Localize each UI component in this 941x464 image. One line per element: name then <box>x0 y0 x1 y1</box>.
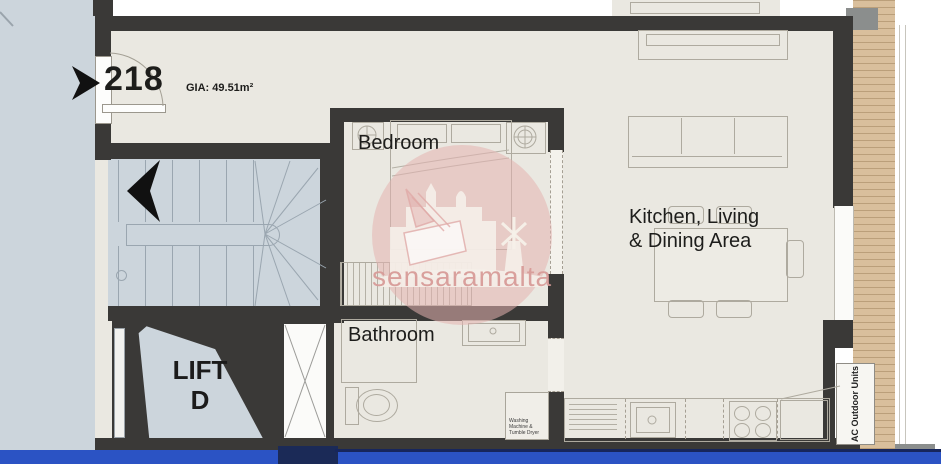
gia-label: GIA: 49.51m² <box>186 82 253 94</box>
toilet-seat <box>363 394 390 416</box>
bathroom-door <box>548 338 564 392</box>
sideboard-inner <box>646 34 780 46</box>
lift-shaft <box>284 324 326 438</box>
counter-divider <box>723 399 724 439</box>
counter-divider <box>685 399 686 439</box>
hob-burner <box>755 406 771 421</box>
wall <box>108 306 564 321</box>
unit-number: 218 <box>104 60 164 99</box>
ac-outdoor-units-label: AC Outdoor Units <box>850 366 861 442</box>
sofa-back-line <box>632 156 782 157</box>
wall <box>95 16 111 58</box>
sofa-seat-divider <box>681 118 682 154</box>
fridge <box>780 400 828 440</box>
kitchen-label-line2: & Dining Area <box>629 230 751 253</box>
kitchen-label-line1: Kitchen, Living <box>629 206 759 229</box>
hob-burner <box>734 406 750 421</box>
lift-door <box>114 328 125 438</box>
stair-handrail <box>126 224 280 246</box>
hob-burner <box>755 423 771 438</box>
nightstand <box>506 122 546 154</box>
wall <box>95 143 344 159</box>
street-band <box>0 450 941 464</box>
counter-divider <box>777 399 778 439</box>
hob-burner <box>734 423 750 438</box>
lift-label-line1: LIFT <box>150 355 250 385</box>
kitchen-sink-basin <box>636 407 670 433</box>
bathroom-label: Bathroom <box>348 324 435 347</box>
entry-door-leaf <box>102 104 166 113</box>
street-band-shadow <box>278 446 338 464</box>
street-band-edge <box>335 449 941 452</box>
stair-newel-circle <box>116 270 127 281</box>
washing-machine-label: Washing Machine & Tumble Dryer <box>506 418 548 439</box>
railing-line <box>899 25 900 448</box>
lift-label: LIFT D <box>150 355 250 415</box>
ac-outdoor-units: AC Outdoor Units <box>836 363 875 445</box>
wall <box>95 16 835 31</box>
dining-chair <box>716 300 752 318</box>
wardrobe <box>340 262 472 306</box>
counter-divider <box>625 399 626 439</box>
bedroom-label: Bedroom <box>358 132 439 155</box>
lift-label-line2: D <box>150 385 250 415</box>
stair-treads-upper <box>118 160 256 222</box>
vanity-basin <box>468 323 520 342</box>
pillow <box>451 124 501 143</box>
wall <box>833 16 853 208</box>
dining-chair <box>786 240 804 278</box>
sofa <box>628 116 788 168</box>
sink-drainer <box>569 404 617 434</box>
railing-line <box>905 25 906 448</box>
wall <box>93 0 113 16</box>
upper-room-furniture <box>630 2 760 14</box>
sofa-seat-divider <box>734 118 735 154</box>
corridor-common-area <box>0 0 95 452</box>
stair-treads-lower <box>118 246 256 306</box>
sliding-partition <box>550 150 563 274</box>
wall <box>548 108 564 152</box>
dining-chair <box>668 300 704 318</box>
floor-plan: Washing Machine & Tumble Dryer AC Outdoo… <box>0 0 941 464</box>
wall <box>823 320 853 348</box>
window-glazing <box>834 206 854 320</box>
washing-machine: Washing Machine & Tumble Dryer <box>505 392 549 440</box>
